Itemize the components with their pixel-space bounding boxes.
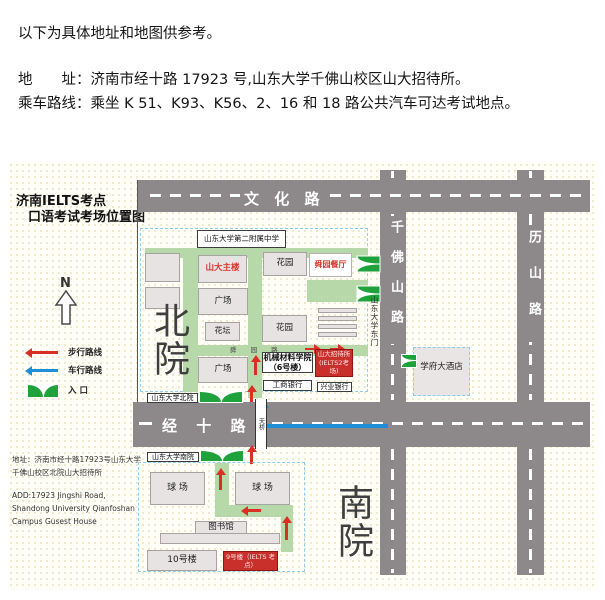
- intro-address-line: 地 址：济南市经十路 17923 号,山东大学千佛山校区山大招待所。: [18, 68, 469, 89]
- legend-drive-arrow-label: 车行路线: [68, 364, 102, 376]
- guest-house-line-1: 山大招待所: [318, 350, 351, 358]
- south-gate-label: 山东大学南院: [147, 452, 199, 462]
- building-cib-bank: 兴业银行: [317, 382, 352, 392]
- building-unlabeled-1: [145, 253, 180, 282]
- building-guest-house: 山大招待所 (IELTS2考场): [315, 349, 353, 377]
- north-arrow-icon: [54, 290, 78, 326]
- address-en-line-2: Shandong University Qianfoshan: [12, 502, 135, 515]
- walk-arrow-south-2: [248, 509, 261, 512]
- building-mechanical-college: 机械材料学院 （6号楼）: [262, 352, 313, 373]
- building-garden-mid: 花园: [262, 315, 307, 342]
- pedestrian-bridge: 天桥: [255, 399, 267, 449]
- walk-arrow-shunyuan-1: [305, 348, 314, 350]
- north-campus-label: 北院: [147, 302, 189, 378]
- walk-arrow-south-3: [285, 523, 288, 540]
- qianfoshan-centerline-top: [391, 171, 394, 178]
- north-gate-label: 山东大学北院: [147, 393, 198, 403]
- address-en-line-1: ADD:17923 Jingshi Road,: [12, 489, 106, 502]
- building-affiliated-middle-school: 山东大学第二附属中学: [197, 230, 286, 248]
- intro-line-1: 以下为具体地址和地图供参考。: [18, 22, 221, 43]
- guest-house-line-2: (IELTS2考场): [316, 359, 352, 376]
- address-cn-line-1: 地址：济南市经十路17923号山东大学: [12, 453, 141, 466]
- wenhua-centerline: [150, 194, 586, 197]
- intro-bus-line: 乘车路线：乘坐 K 51、K93、K56、2、16 和 18 路公共汽车可达考试…: [18, 92, 519, 113]
- building-library-wing: [160, 533, 280, 544]
- east-gate-label: 山东大学东门: [369, 296, 380, 347]
- parking-strip-2: [318, 316, 357, 321]
- walk-arrow-north-path: [254, 362, 257, 375]
- south-gate-icon: [200, 450, 244, 462]
- legend-walk-label: 步行路线: [68, 346, 102, 358]
- building-xuefu-hotel: 学府大酒店: [413, 347, 470, 396]
- page: 以下为具体地址和地图供参考。 地 址：济南市经十路 17923 号,山东大学千佛…: [0, 0, 605, 600]
- map-left-boundary-line: [137, 180, 138, 402]
- east-gate-icon-1: [357, 256, 381, 273]
- building-flowerbed: 花坛: [205, 322, 240, 341]
- building-garden-top: 花园: [263, 252, 307, 276]
- parking-strip-1: [318, 308, 357, 313]
- jingshi-centerline-dash: [139, 422, 152, 425]
- walk-arrow-south-1: [219, 475, 222, 490]
- lishan-centerline-bottom: [529, 449, 532, 573]
- mech-college-line-2: （6号楼）: [269, 363, 307, 372]
- parking-strip-4: [318, 332, 357, 337]
- address-cn-line-2: 千佛山校区北院山大招待所: [12, 466, 102, 479]
- map-title-line-2: 口语考试考场位置图: [28, 206, 145, 225]
- road-label-jingshi: 经 十 路: [158, 415, 256, 436]
- building-no9-ielts-venue: 9号楼（IELTS 考点）: [223, 551, 278, 571]
- qianfoshan-centerline-bottom: [391, 449, 394, 573]
- road-label-wenhua: 文 化 路: [240, 188, 328, 209]
- building-shunyuan-restaurant: 舜园餐厅: [309, 253, 352, 277]
- address-en-line-3: Campus Gusest House: [12, 515, 97, 528]
- legend-entrance-icon: [27, 384, 59, 398]
- pedestrian-bridge-label: 天桥: [257, 418, 266, 430]
- north-path-second-vertical: [248, 252, 262, 398]
- drive-route-line: [266, 424, 388, 428]
- building-no10: 10号楼: [147, 550, 217, 571]
- building-main-building: 山大主楼: [198, 255, 247, 283]
- building-court-right: 球 场: [235, 472, 290, 505]
- building-square-bottom: 广场: [198, 357, 248, 383]
- compass-n-label: N: [60, 276, 71, 291]
- hotel-entrance-icon: [401, 354, 417, 368]
- road-label-qianfoshan: 千佛山路: [386, 216, 405, 344]
- building-court-left: 球 场: [150, 472, 205, 505]
- south-campus-label: 南院: [331, 484, 373, 560]
- building-square-top: 广场: [198, 288, 248, 315]
- building-icbc-bank: 工商银行: [263, 380, 312, 391]
- north-gate-icon: [199, 391, 243, 403]
- walk-arrow-bridge-top: [250, 392, 253, 402]
- legend-walk-arrow-icon: [32, 351, 58, 354]
- mech-college-line-1: 机械材料学院: [264, 353, 312, 362]
- legend-drive-arrow-icon: [32, 369, 58, 372]
- legend-entrance-label: 入 口: [68, 384, 88, 396]
- road-label-lishan: 历山路: [524, 226, 543, 342]
- parking-strip-3: [318, 324, 357, 329]
- lishan-centerline-top: [529, 171, 532, 178]
